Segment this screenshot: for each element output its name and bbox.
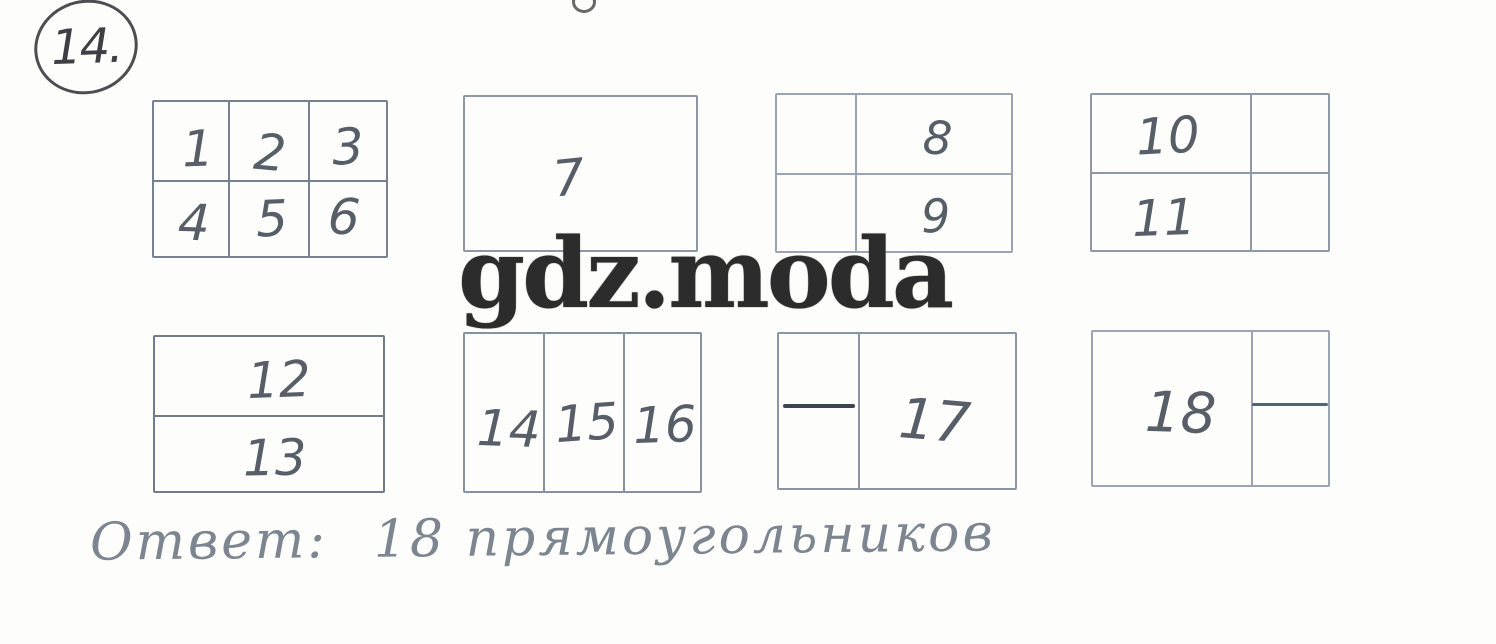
divider-line [1250, 93, 1252, 252]
cell-number: 11 [1131, 192, 1196, 244]
cell-number: 13 [243, 432, 307, 483]
figure-5-split-horizontal: 12 13 [153, 335, 385, 493]
cell-number: 2 [252, 127, 288, 180]
cell-number: 6 [326, 191, 361, 243]
divider-line [153, 415, 385, 417]
cell-number: 16 [632, 399, 697, 451]
notebook-page: 14. 1 2 3 4 5 6 7 8 9 10 11 12 [0, 0, 1496, 644]
divider-line [228, 100, 230, 258]
watermark: gdz.moda [458, 226, 951, 322]
divider-line [775, 173, 1013, 175]
problem-number-circle: 14. [24, 0, 148, 105]
divider-line [543, 332, 545, 493]
rectangle-outline [777, 332, 1017, 490]
cell-number: 17 [897, 391, 973, 453]
pencil-stroke [783, 404, 855, 408]
divider-line [1251, 330, 1253, 487]
cell-number: 7 [550, 151, 587, 204]
problem-number: 14. [50, 18, 122, 76]
answer-line: Ответ:18 прямоугольников [90, 503, 996, 572]
cell-number: 14 [476, 403, 541, 455]
divider-line [858, 332, 860, 490]
cell-number: 1 [181, 123, 215, 174]
cell-number: 8 [922, 114, 954, 161]
figure-1-grid-2x3: 1 2 3 4 5 6 [152, 100, 388, 258]
figure-8-split: 18 [1091, 330, 1330, 487]
cell-number: 12 [246, 354, 311, 406]
cell-number: 4 [177, 197, 211, 248]
cell-number: 5 [255, 193, 289, 244]
clipped-handwriting-mark [572, 0, 596, 13]
figure-4-split: 10 11 [1090, 93, 1330, 252]
answer-value: 18 прямоугольников [374, 503, 996, 570]
cell-number: 15 [553, 396, 620, 450]
cell-number: 18 [1144, 385, 1217, 443]
divider-line [1090, 172, 1330, 174]
figure-7-split: 17 [777, 332, 1017, 490]
divider-line [623, 332, 625, 493]
answer-label: Ответ: [90, 510, 328, 572]
cell-number: 10 [1135, 109, 1201, 162]
pencil-stroke [1252, 403, 1328, 406]
cell-number: 3 [331, 121, 365, 173]
figure-6-three-columns: 14 15 16 [463, 332, 702, 493]
divider-line [308, 100, 310, 258]
